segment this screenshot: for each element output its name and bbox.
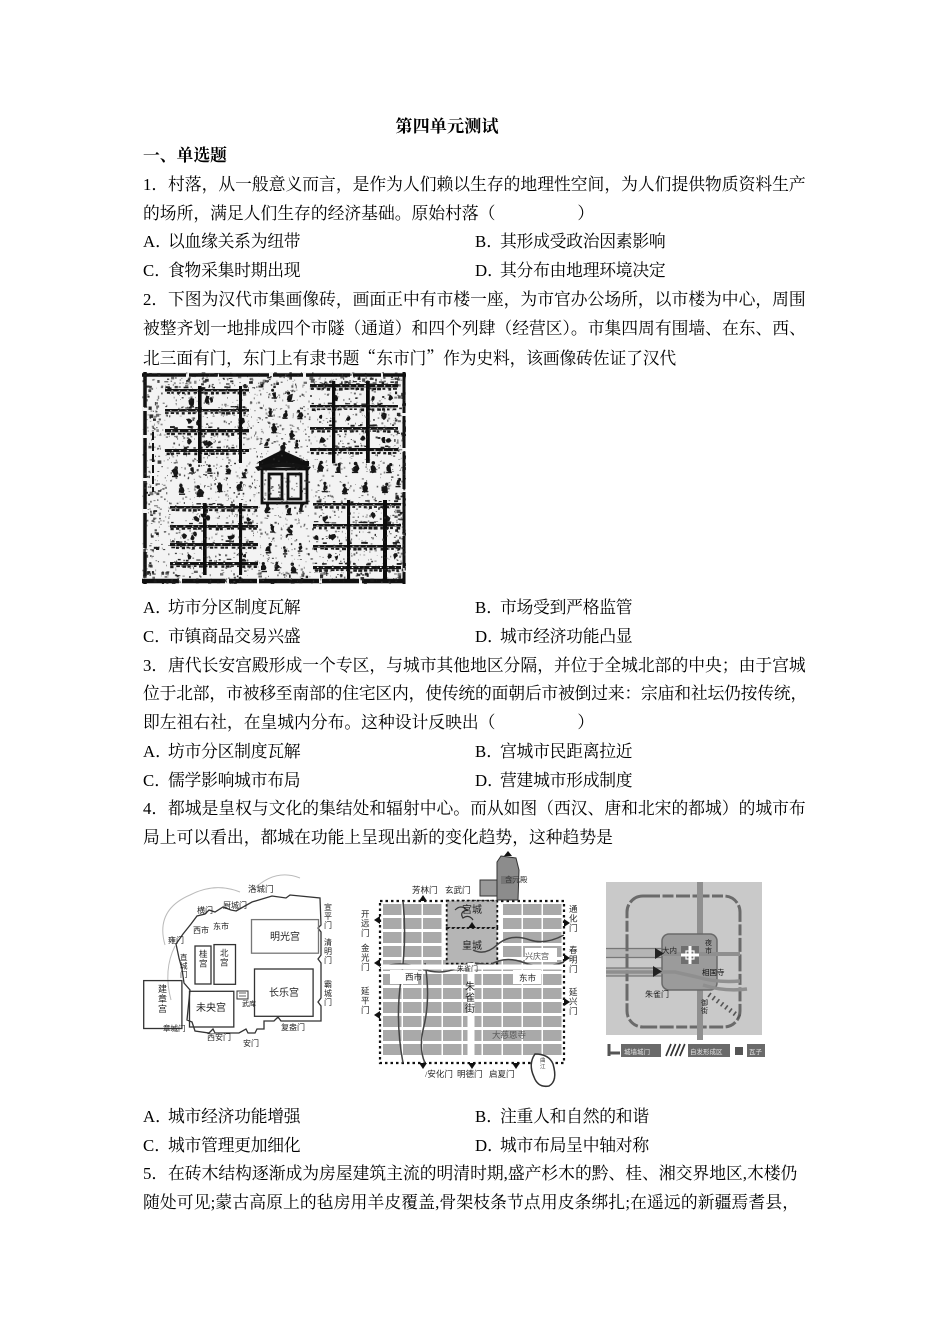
svg-text:宣: 宣 [324,902,332,912]
svg-text:北: 北 [220,948,229,958]
svg-text:雀: 雀 [465,992,475,1004]
svg-text:门: 门 [361,962,370,972]
svg-text:桂: 桂 [199,949,208,959]
svg-text:安门: 安门 [243,1038,259,1048]
svg-text:/安化门: /安化门 [425,1069,453,1079]
svg-text:西市: 西市 [405,972,423,982]
svg-text:通: 通 [569,904,578,914]
svg-text:门: 门 [324,997,332,1007]
svg-text:光: 光 [361,953,370,963]
svg-text:雍门: 雍门 [168,935,184,945]
svg-text:厨城门: 厨城门 [223,900,247,910]
svg-text:玄武门: 玄武门 [445,885,471,895]
svg-text:相国寺: 相国寺 [702,967,725,977]
svg-text:远: 远 [361,919,370,929]
svg-text:瓦子: 瓦子 [749,1048,763,1056]
svg-text:金: 金 [361,943,370,953]
svg-text:建: 建 [158,983,167,994]
svg-text:含元殿: 含元殿 [505,874,528,884]
svg-text:御: 御 [701,998,708,1007]
svg-text:门: 门 [569,1006,578,1016]
svg-text:江: 江 [540,1064,546,1071]
svg-text:城墙城门: 城墙城门 [624,1047,650,1056]
svg-text:明: 明 [569,955,578,965]
svg-text:洛城门: 洛城门 [248,884,274,894]
svg-text:平: 平 [361,996,370,1006]
svg-text:宫: 宫 [158,1003,167,1014]
svg-text:平: 平 [324,912,332,921]
svg-text:明德门: 明德门 [457,1069,483,1079]
svg-text:芳林门: 芳林门 [412,885,438,895]
svg-text:化: 化 [569,914,578,924]
svg-text:开: 开 [361,909,370,919]
svg-text:长乐宫: 长乐宫 [269,986,299,999]
svg-text:武库: 武库 [242,999,256,1008]
svg-text:兴庆宫: 兴庆宫 [525,951,549,961]
svg-text:明: 明 [324,947,332,956]
svg-text:明光宫: 明光宫 [270,930,300,943]
svg-text:清: 清 [324,937,332,947]
svg-text:夜: 夜 [705,938,712,947]
svg-text:门: 门 [324,920,332,930]
svg-text:宫: 宫 [220,958,229,968]
svg-text:门: 门 [361,928,370,938]
svg-text:门: 门 [569,923,578,933]
svg-text:延: 延 [361,986,370,996]
svg-text:兴: 兴 [569,997,578,1007]
svg-text:春: 春 [569,945,578,955]
svg-text:大慈恩寺: 大慈恩寺 [492,1030,527,1040]
svg-text:门: 门 [180,970,188,979]
svg-text:章: 章 [158,993,167,1004]
svg-text:宫: 宫 [199,959,208,969]
svg-text:城: 城 [324,989,332,998]
svg-text:市: 市 [705,946,712,955]
svg-text:皇城: 皇城 [462,939,482,952]
svg-text:直: 直 [180,952,188,962]
svg-text:街: 街 [465,1002,475,1015]
svg-text:横门: 横门 [197,905,213,915]
svg-text:西安门: 西安门 [207,1032,231,1042]
svg-text:门: 门 [361,1005,370,1015]
svg-text:复盎门: 复盎门 [281,1022,305,1032]
svg-text:东市: 东市 [519,973,537,983]
svg-text:启夏门: 启夏门 [489,1069,515,1079]
svg-text:街: 街 [701,1006,708,1015]
svg-text:未央宫: 未央宫 [196,1001,226,1014]
svg-text:自发形成区: 自发形成区 [690,1047,723,1056]
svg-text:西市: 西市 [193,925,209,935]
svg-text:宫城: 宫城 [462,903,482,916]
svg-text:曲: 曲 [540,1056,546,1064]
svg-text:章城门: 章城门 [163,1023,186,1033]
svg-text:朱: 朱 [465,981,475,993]
svg-text:门: 门 [324,955,332,965]
svg-text:延: 延 [569,987,578,997]
svg-text:门: 门 [569,964,578,974]
svg-text:朱雀门: 朱雀门 [645,989,669,999]
svg-text:大内: 大内 [662,945,677,955]
svg-text:东市: 东市 [213,921,229,931]
svg-text:朱雀门: 朱雀门 [457,964,478,973]
svg-text:霸: 霸 [324,980,332,989]
